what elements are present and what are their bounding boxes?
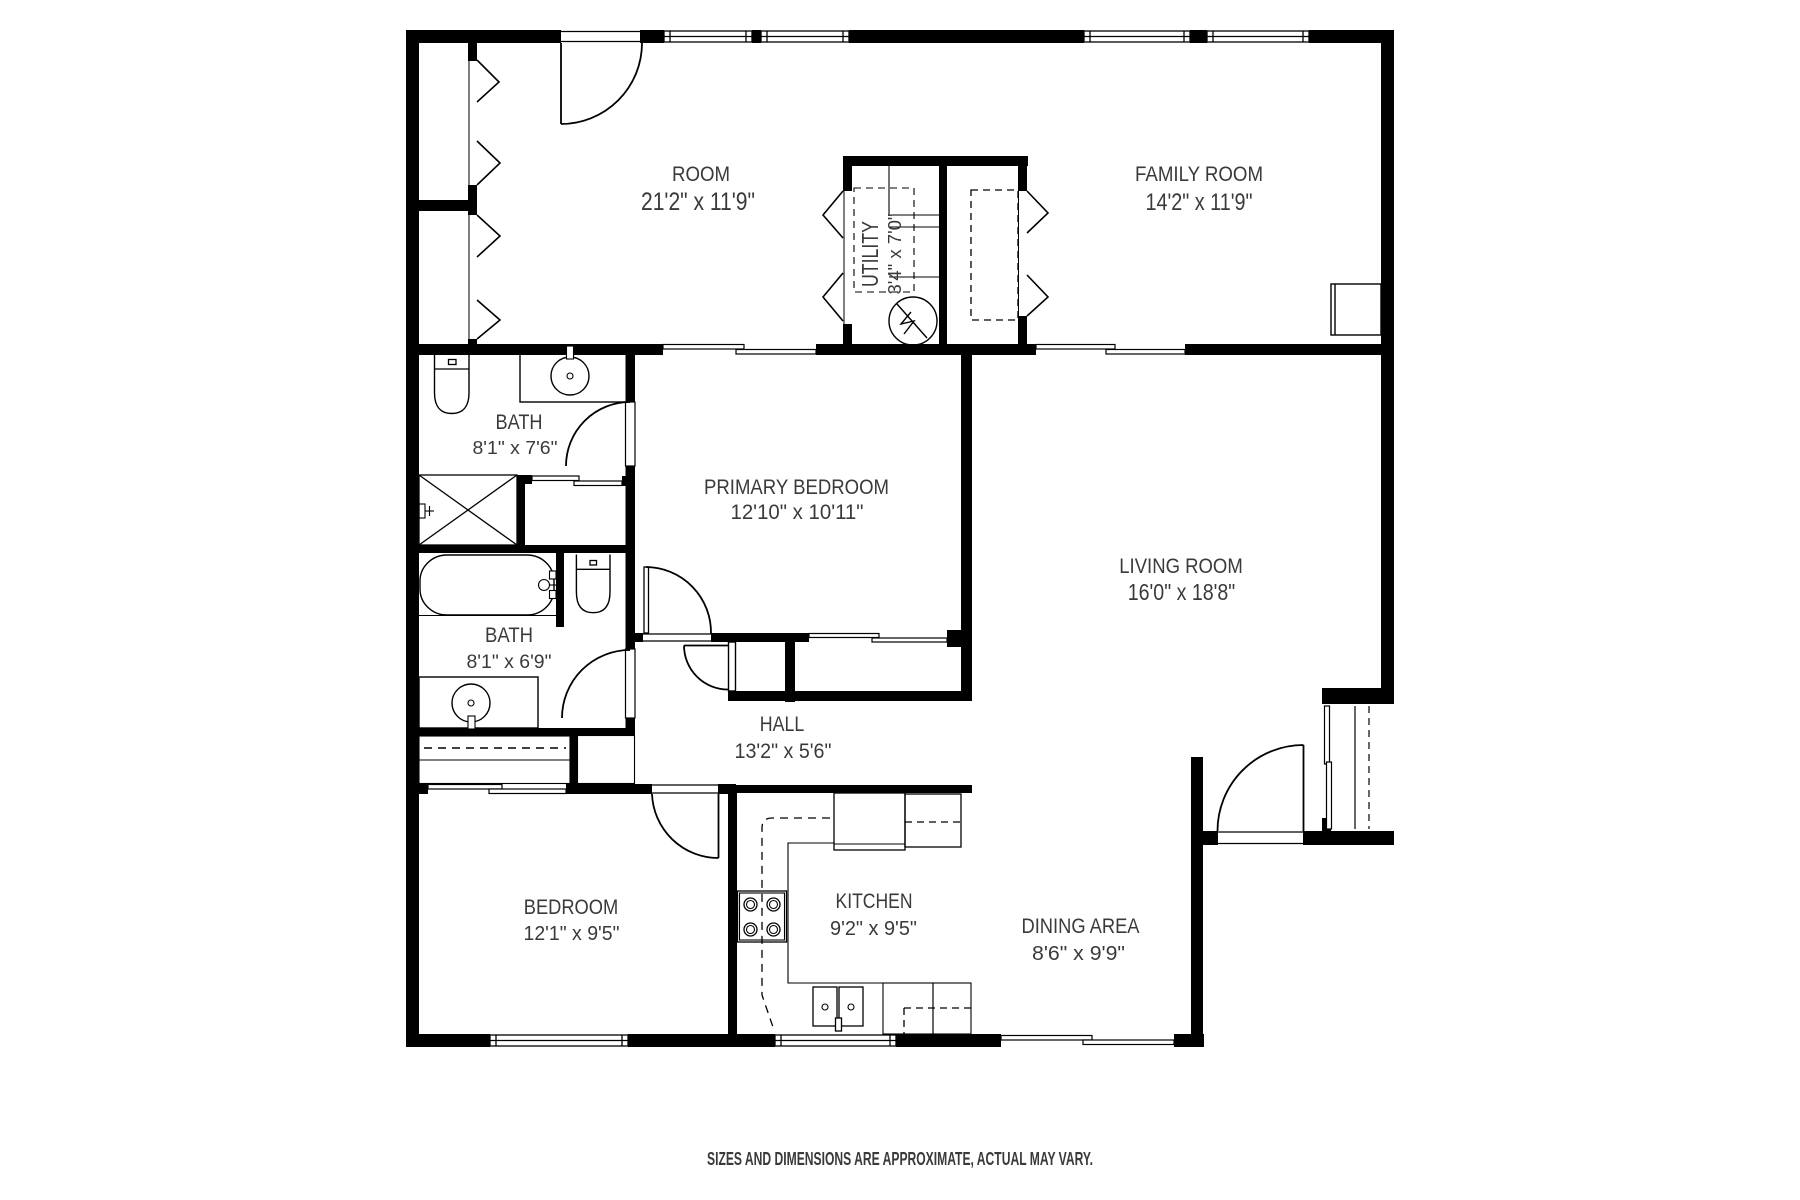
- svg-text:LIVING ROOM: LIVING ROOM: [1119, 554, 1243, 578]
- svg-text:ROOM: ROOM: [672, 162, 730, 186]
- svg-text:9'2" x 9'5": 9'2" x 9'5": [830, 918, 917, 940]
- svg-text:14'2" x 11'9": 14'2" x 11'9": [1146, 189, 1253, 216]
- svg-text:21'2" x 11'9": 21'2" x 11'9": [641, 188, 755, 216]
- svg-text:BATH: BATH: [485, 623, 533, 647]
- svg-text:SIZES AND DIMENSIONS ARE APPRO: SIZES AND DIMENSIONS ARE APPROXIMATE, AC…: [707, 1149, 1093, 1169]
- svg-text:12'1" x 9'5": 12'1" x 9'5": [524, 923, 620, 945]
- svg-text:8'1" x 6'9": 8'1" x 6'9": [467, 652, 552, 673]
- svg-text:DINING AREA: DINING AREA: [1022, 914, 1141, 938]
- svg-text:PRIMARY BEDROOM: PRIMARY BEDROOM: [704, 475, 889, 499]
- svg-text:HALL: HALL: [760, 712, 805, 736]
- svg-text:BEDROOM: BEDROOM: [524, 895, 619, 919]
- svg-text:KITCHEN: KITCHEN: [836, 889, 913, 913]
- svg-text:FAMILY ROOM: FAMILY ROOM: [1135, 162, 1263, 186]
- svg-text:3'4" x 7'0": 3'4" x 7'0": [885, 214, 905, 295]
- svg-text:8'6" x 9'9": 8'6" x 9'9": [1032, 942, 1125, 965]
- svg-text:16'0" x 18'8": 16'0" x 18'8": [1128, 579, 1236, 605]
- svg-text:13'2" x 5'6": 13'2" x 5'6": [735, 740, 832, 763]
- svg-text:12'10" x 10'11": 12'10" x 10'11": [731, 501, 864, 524]
- svg-text:UTILITY: UTILITY: [857, 221, 883, 287]
- svg-text:8'1" x 7'6": 8'1" x 7'6": [473, 437, 558, 458]
- svg-text:BATH: BATH: [496, 410, 543, 434]
